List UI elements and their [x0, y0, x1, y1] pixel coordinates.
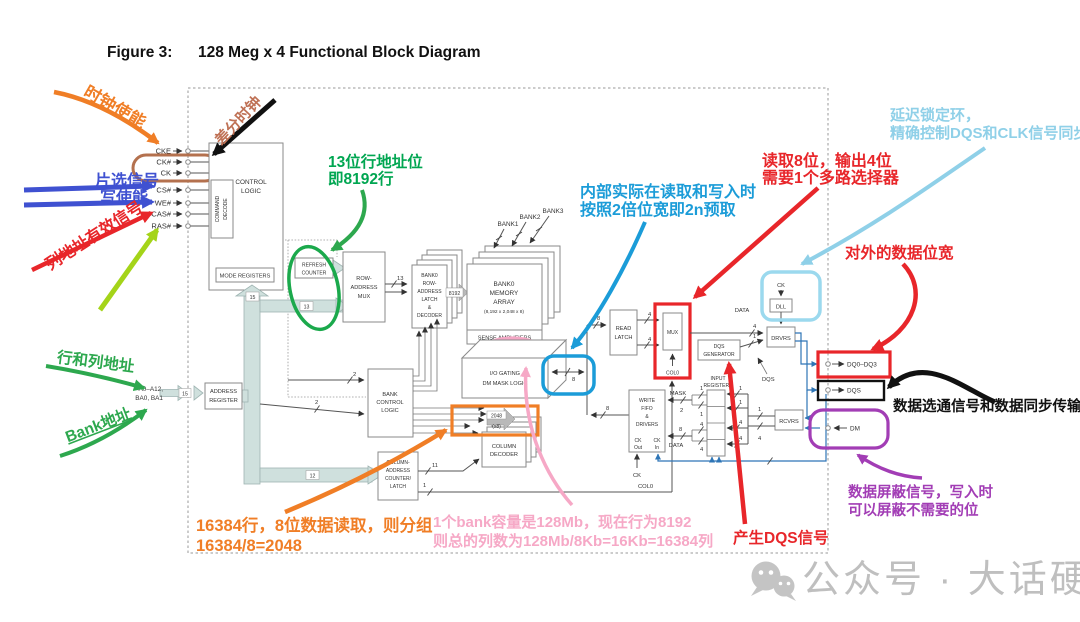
write-fifo-group: 8 WRITE FIFO & DRIVERS CK Out CK In CK — [591, 390, 665, 479]
pin-cas-n: CAS# — [151, 210, 211, 219]
bus-ir1a-label: 1 — [739, 386, 742, 392]
dll-note2: 精确控制DQS和CLK信号同步 — [890, 124, 1080, 142]
bus-addr15-label: 15 — [182, 392, 188, 398]
svg-text:INPUT: INPUT — [711, 376, 726, 382]
diff-clock-note: 差分时钟 — [211, 93, 265, 149]
bus-rc1-label: 1 — [758, 407, 761, 413]
dm-pin-label: DM — [850, 426, 860, 433]
watermark-text: 公众号 · 大话硬件 — [802, 559, 1080, 601]
functional-block-diagram: Figure 3: 128 Meg x 4 Functional Block D… — [0, 0, 1080, 622]
dq-pins-label: DQ0–DQ3 — [847, 362, 877, 369]
mux-output-bus: 4 DATA — [690, 308, 763, 337]
ras-arrow — [100, 230, 157, 310]
svg-text:DECODER: DECODER — [417, 313, 442, 319]
svg-text:WE#: WE# — [155, 199, 172, 208]
bank-control-label2: CONTROL — [376, 400, 403, 406]
refresh-counter-label: REFRESH — [302, 263, 326, 269]
row-mux-label: ROW- — [356, 276, 372, 282]
svg-text:RAS#: RAS# — [151, 222, 171, 231]
prefetch-note: 内部实际在读取和写入时 — [580, 182, 756, 201]
strobe-note: 数据选通信号和数据同步传输 — [893, 397, 1080, 415]
width-note: 对外的数据位宽 — [845, 243, 954, 262]
bank-control-label3: LOGIC — [381, 408, 398, 414]
dll-note: 延迟锁定环， — [889, 106, 980, 124]
pin-cs-n: CS# — [156, 186, 211, 195]
bus-wf8-label: 8 — [606, 406, 609, 412]
pin-ck-n: CK# — [156, 158, 209, 167]
svg-text:DECODER: DECODER — [490, 452, 518, 458]
bus-d8-label: 8 — [679, 427, 682, 433]
col0-line-label: COL0 — [638, 484, 653, 490]
svg-text:Out: Out — [634, 445, 643, 451]
data-bus: 4 4 8 DATA — [668, 422, 707, 453]
svg-text:FIFO: FIFO — [641, 406, 652, 412]
bus-rl8-label: 8 — [597, 316, 600, 322]
wechat-icon — [751, 562, 796, 602]
bus-13-label: 13 — [304, 305, 310, 311]
data-out-label: DATA — [735, 308, 750, 314]
refresh-counter-highlight-ring — [282, 242, 346, 334]
svg-text:CAS#: CAS# — [151, 210, 171, 219]
bank3-tag: BANK3 — [543, 208, 564, 215]
ck-dll-label: CK — [777, 283, 785, 289]
svg-text:CK#: CK# — [156, 158, 171, 167]
svg-text:GENERATOR: GENERATOR — [703, 352, 735, 358]
pin-dm: DM — [826, 426, 860, 433]
command-decode-label2: DECODE — [223, 198, 229, 220]
bus-12-label: 12 — [310, 474, 316, 480]
bank-control-label: BANK — [382, 392, 398, 398]
mux-label: MUX — [667, 330, 679, 336]
strobe-note-arrow — [889, 373, 995, 402]
dqs-note: 产生DQS信号 — [733, 528, 829, 547]
data-in-label: DATA — [669, 443, 684, 449]
ck-ext-label: CK — [633, 473, 641, 479]
bus-x8-label: (x8) — [492, 424, 501, 430]
address-register-label: ADDRESS — [210, 389, 237, 395]
bus-mask2-label: 2 — [680, 408, 683, 414]
memory-array-stack: BANK0 MEMORY ARRAY (8,192 x 2,048 x 8) S… — [467, 246, 560, 344]
pin-dqs: DQS — [826, 388, 861, 395]
address-register-block — [205, 383, 242, 409]
svg-text:BANK0: BANK0 — [421, 273, 438, 279]
mask-note-arrow — [858, 455, 922, 478]
dm-highlight-ring — [810, 410, 888, 448]
svg-text:LATCH: LATCH — [390, 484, 406, 490]
pin-ras-n: RAS# — [151, 222, 211, 231]
bus-row13-label: 13 — [397, 276, 403, 282]
svg-text:(8,192 x 2,048 x 8): (8,192 x 2,048 x 8) — [484, 309, 524, 315]
row-mux-label2: ADDRESS — [350, 285, 377, 291]
grouping-note: 16384行，8位数据读取，则分组 — [196, 515, 433, 535]
dqs-tag-label: DQS — [762, 377, 775, 383]
bank-select-buses: 2 2 — [260, 372, 364, 414]
svg-text:ADDRESS: ADDRESS — [386, 468, 411, 474]
mask-note: 数据屏蔽信号，写入时 — [848, 483, 993, 501]
bank2-tag: BANK2 — [520, 214, 541, 221]
bank-capacity-note2: 则总的列数为128Mb/8Kb=16Kb=16384列 — [433, 532, 713, 550]
bank-tags: BANK1 BANK2 BANK3 — [494, 208, 564, 248]
row-bits-note2: 即8192行 — [328, 169, 394, 188]
bus-15-up-label: 15 — [250, 295, 256, 301]
svg-text:COLUMN: COLUMN — [492, 444, 516, 450]
width-note-arrow — [873, 264, 916, 349]
row-mux-label3: MUX — [358, 294, 371, 300]
bus-4b-label: 4 — [648, 337, 652, 343]
bus-ir1b-label: 1 — [739, 400, 742, 406]
svg-text:DRIVERS: DRIVERS — [636, 422, 659, 428]
dll-highlight-ring — [762, 272, 820, 320]
row-bits-note: 13位行地址位 — [328, 152, 423, 171]
bus-m1b-label: 1 — [700, 412, 703, 418]
svg-text:COUNTER/: COUNTER/ — [385, 476, 412, 482]
pin-ck: CK — [161, 169, 209, 178]
figure-label: Figure 3: — [107, 44, 172, 61]
address-pins-label2: BA0, BA1 — [135, 395, 163, 402]
control-logic-label2: LOGIC — [241, 188, 261, 195]
svg-text:DQS: DQS — [714, 344, 726, 350]
bank-capacity-note: 1个bank容量是128Mb，现在行为8192 — [433, 513, 691, 531]
pin-we-n: WE# — [155, 199, 211, 208]
dqs-pin-label: DQS — [847, 388, 861, 395]
bus-1-label: 1 — [423, 483, 426, 489]
grouping-note2: 16384/8=2048 — [196, 537, 302, 555]
bus-2b-label: 2 — [315, 400, 318, 406]
read-path: 8 READ LATCH 4 4 MUX COL0 — [587, 310, 682, 377]
bus-ir4a-label: 4 — [739, 420, 743, 426]
svg-text:WRITE: WRITE — [639, 398, 656, 404]
bus-11-label: 11 — [432, 463, 438, 469]
dll-group: CK DLL — [770, 283, 792, 324]
svg-text:READ: READ — [616, 326, 632, 332]
svg-text:LATCH: LATCH — [421, 297, 437, 303]
command-decode-label: COMMAND — [215, 195, 221, 222]
svg-text:CK: CK — [161, 169, 171, 178]
svg-text:CK: CK — [635, 438, 643, 444]
bus-8192-label: 8192 — [449, 291, 461, 297]
bus-4a-label: 4 — [648, 312, 652, 318]
mux-note: 读取8位，输出4位 — [762, 151, 892, 170]
page-title: 128 Meg x 4 Functional Block Diagram — [198, 44, 481, 61]
drvrs-label: DRVRS — [771, 336, 791, 342]
io-gating-block: I/O GATING DM MASK LOGIC — [462, 340, 566, 398]
mask-label: MASK — [670, 391, 687, 397]
svg-text:MEMORY: MEMORY — [490, 290, 519, 297]
mux-note2: 需要1个多路选择器 — [762, 168, 900, 187]
bus-out4-label: 4 — [753, 324, 757, 330]
svg-text:ROW-: ROW- — [423, 281, 437, 287]
bus-2a-label: 2 — [353, 372, 356, 378]
svg-text:DM MASK LOGIC: DM MASK LOGIC — [482, 381, 527, 387]
rcvrs-label: RCVRS — [779, 419, 799, 425]
bus-ir4b-label: 4 — [739, 436, 743, 442]
left-pin-group: CKE CK# CK CS# WE# CAS# RAS# — [151, 147, 211, 231]
svg-text:CK: CK — [654, 438, 662, 444]
bus-io8-label: 8 — [572, 377, 575, 383]
write-enable-note: 写使能 — [100, 188, 148, 207]
prefetch-note2: 按照2倍位宽即2n预取 — [580, 200, 736, 219]
mask-bus: 1 1 2 MASK — [668, 386, 707, 418]
svg-text:ADDRESS: ADDRESS — [417, 289, 442, 295]
bus-rc4-label: 4 — [758, 436, 762, 442]
bank1-tag: BANK1 — [498, 221, 519, 228]
svg-text:I/O GATING: I/O GATING — [490, 371, 520, 377]
svg-text:BANK0: BANK0 — [494, 281, 515, 288]
bus-gen1-label: 1 — [753, 334, 756, 340]
mask-note2: 可以屏蔽不需要的位 — [848, 501, 979, 519]
col0-mux-label: COL0 — [666, 371, 679, 377]
dqs-generator: DQS GENERATOR 1 DQS — [698, 334, 775, 383]
bus-m1a-label: 1 — [700, 386, 703, 392]
mode-registers-label: MODE REGISTERS — [220, 274, 271, 280]
row13-bus: 13 — [385, 276, 407, 292]
refresh-counter-label2: COUNTER — [302, 271, 327, 277]
control-logic-label: CONTROL — [235, 179, 267, 186]
svg-text:In: In — [655, 445, 659, 451]
clock-enable-note: 时钟使能 — [81, 81, 150, 132]
dll-label: DLL — [776, 305, 786, 311]
bus-2048-label: 2048 — [491, 414, 502, 420]
diagram-canvas: Figure 3: 128 Meg x 4 Functional Block D… — [0, 0, 1080, 622]
address-register-label2: REGISTER — [209, 398, 238, 404]
svg-text:LATCH: LATCH — [615, 335, 633, 341]
pin-dq: DQ0–DQ3 — [826, 362, 878, 369]
cas-note: 列地址有效信号 — [42, 197, 146, 274]
svg-text:REGISTERS: REGISTERS — [704, 383, 734, 389]
chip-select-note: 片选信号 — [95, 171, 159, 190]
bus-d4b-label: 4 — [700, 447, 704, 453]
svg-text:ARRAY: ARRAY — [493, 299, 515, 306]
